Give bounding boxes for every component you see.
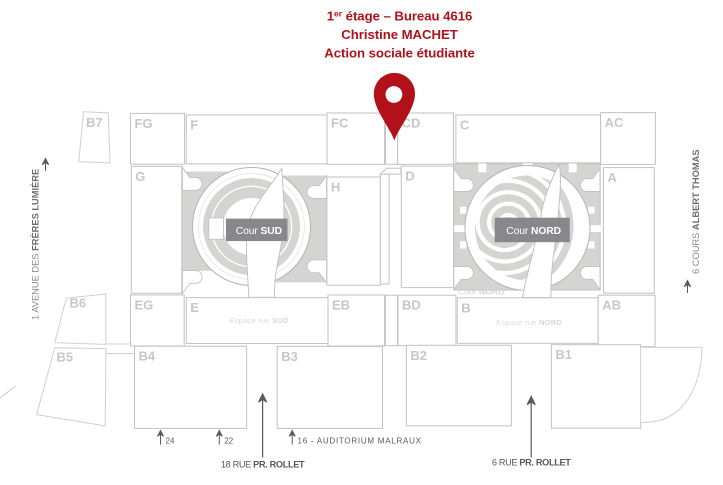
svg-text:AC: AC [605,115,624,130]
svg-text:B6: B6 [70,296,87,311]
svg-text:B5: B5 [57,350,74,365]
svg-text:24: 24 [166,437,175,446]
svg-text:G: G [135,169,145,184]
svg-text:16 - AUDITORIUM MALRAUX: 16 - AUDITORIUM MALRAUX [298,437,422,446]
svg-text:AB: AB [602,298,621,313]
svg-text:B: B [461,300,470,315]
svg-text:22: 22 [224,437,233,446]
svg-text:B7: B7 [86,115,103,130]
svg-text:A: A [608,170,618,185]
svg-text:6 COURS ALBERT THOMAS: 6 COURS ALBERT THOMAS [691,150,701,275]
svg-text:Espace rue SUD: Espace rue SUD [229,316,289,325]
svg-text:Cour NORD: Cour NORD [458,287,504,297]
svg-text:FG: FG [135,116,153,131]
svg-text:B4: B4 [139,349,156,364]
svg-text:E: E [190,300,199,315]
svg-text:B2: B2 [410,348,427,363]
svg-text:Espace rue NORD: Espace rue NORD [496,318,562,327]
svg-text:BD: BD [402,298,421,313]
svg-text:B3: B3 [281,349,298,364]
svg-text:D: D [405,169,414,184]
svg-text:Christine MACHET: Christine MACHET [341,27,457,42]
svg-text:6 RUE PR. ROLLET: 6 RUE PR. ROLLET [492,458,571,468]
svg-text:F: F [190,118,198,133]
svg-text:EG: EG [135,298,154,313]
svg-text:Action sociale étudiante: Action sociale étudiante [324,46,475,61]
svg-text:EB: EB [332,298,350,313]
svg-text:Cour SUD: Cour SUD [236,226,282,237]
svg-text:1 AVENUE DES FRÈRES LUMIÈRE: 1 AVENUE DES FRÈRES LUMIÈRE [31,169,41,320]
svg-text:FC: FC [331,116,349,131]
svg-text:Cour NORD: Cour NORD [506,226,561,237]
svg-text:B1: B1 [555,347,572,362]
svg-text:1er étage – Bureau 4616: 1er étage – Bureau 4616 [327,8,473,23]
svg-text:H: H [331,180,340,195]
svg-text:C: C [460,118,470,133]
svg-text:18 RUE PR. ROLLET: 18 RUE PR. ROLLET [221,460,305,470]
